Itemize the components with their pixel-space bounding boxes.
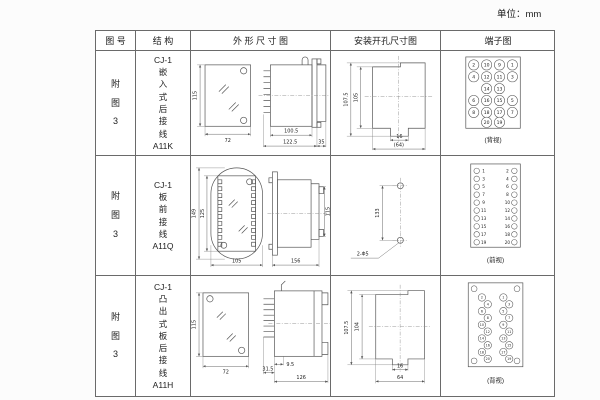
svg-text:17: 17	[497, 110, 503, 116]
dim-label: 115	[192, 91, 198, 100]
row1-terminal-diagram: 2109141211314136161558181772019 (背视)	[441, 51, 555, 155]
unit-label: 单位：mm	[497, 6, 541, 20]
row2-terminal-diagram: 1234567891011121314151617181920 (前视)	[441, 156, 555, 275]
header-structure-col: 结 构	[136, 31, 191, 51]
dim-label: 105	[232, 259, 241, 265]
side-view-drawing: 9.5 31.5 126	[262, 280, 329, 382]
svg-text:6: 6	[472, 98, 475, 104]
svg-text:7: 7	[511, 110, 514, 116]
svg-text:4: 4	[506, 176, 509, 181]
svg-text:18: 18	[505, 232, 511, 237]
svg-text:9: 9	[502, 322, 504, 326]
header-terminal-col: 端子图	[441, 31, 555, 51]
row3-outline-cell: 115 72 9.5 31.5 126	[191, 276, 331, 396]
dim-label: 104	[355, 322, 361, 331]
svg-text:10: 10	[480, 322, 484, 326]
row2-install-cell: 133 2-Φ5	[331, 156, 441, 276]
svg-text:4: 4	[487, 302, 489, 306]
dim-label: 107.5	[343, 92, 349, 106]
svg-text:9: 9	[498, 63, 501, 69]
row3-install-diagram: 107.5 104 16 64	[331, 277, 440, 396]
svg-text:5: 5	[502, 309, 504, 313]
svg-text:12: 12	[484, 74, 490, 80]
hole-spec-label: 2-Φ5	[357, 252, 369, 258]
dim-label: 105	[353, 93, 359, 102]
svg-text:20: 20	[484, 120, 490, 126]
svg-text:20: 20	[486, 357, 490, 361]
svg-text:14: 14	[480, 336, 484, 340]
dim-label: (64)	[394, 143, 404, 149]
row1-install-cell: 107.5 105 16 (64)	[331, 51, 441, 156]
svg-text:14: 14	[484, 86, 490, 92]
svg-text:10: 10	[484, 63, 490, 69]
view-label: (背视)	[484, 135, 501, 144]
install-hole-drawing: 133 2-Φ5	[351, 178, 408, 258]
row3-figure-label: 附 图 3	[96, 276, 136, 396]
dim-label: 156	[291, 259, 300, 265]
terminal-circles: 1234567891011121314151617181920	[474, 168, 517, 245]
svg-text:8: 8	[487, 316, 489, 320]
svg-text:3: 3	[508, 302, 510, 306]
side-view-drawing: 156 115	[267, 172, 330, 267]
row1-figure-label: 附 图 3	[96, 51, 136, 156]
svg-text:19: 19	[497, 120, 503, 126]
svg-text:6: 6	[506, 184, 509, 189]
svg-text:11: 11	[481, 208, 487, 213]
dim-label: 72	[225, 138, 231, 144]
row2-terminal-cell: 1234567891011121314151617181920 (前视)	[441, 156, 555, 276]
svg-text:3: 3	[482, 176, 485, 181]
svg-text:7: 7	[508, 316, 510, 320]
svg-text:4: 4	[472, 74, 475, 80]
svg-text:19: 19	[481, 240, 487, 245]
svg-text:1: 1	[511, 63, 514, 69]
page-root: { "unit_label": "单位：mm", "header": { "co…	[0, 0, 600, 400]
svg-text:18: 18	[484, 110, 490, 116]
svg-text:3: 3	[511, 74, 514, 80]
svg-text:8: 8	[472, 110, 475, 116]
side-view-drawing: 100.5 122.5 35	[259, 57, 329, 147]
svg-text:8: 8	[506, 192, 509, 197]
svg-text:18: 18	[480, 350, 484, 354]
svg-text:1: 1	[502, 295, 504, 299]
dim-label: 122.5	[283, 140, 297, 146]
svg-text:9: 9	[482, 200, 485, 205]
svg-text:20: 20	[505, 240, 511, 245]
svg-text:11: 11	[507, 329, 511, 333]
svg-text:14: 14	[505, 216, 511, 221]
svg-text:16: 16	[484, 98, 490, 104]
dim-label: 9.5	[286, 362, 294, 368]
svg-text:16: 16	[505, 224, 511, 229]
dim-label: 100.5	[284, 129, 298, 135]
dim-label: 125	[200, 209, 206, 218]
view-label: (背视)	[487, 375, 504, 384]
row3-outline-diagram: 115 72 9.5 31.5 126	[191, 277, 330, 396]
svg-text:19: 19	[507, 357, 511, 361]
view-label: (前视)	[487, 255, 504, 264]
front-view-drawing: 115 72	[191, 292, 248, 375]
dim-label: 126	[296, 375, 305, 381]
dim-label: 149	[191, 209, 197, 218]
row3-install-cell: 107.5 104 16 64	[331, 276, 441, 396]
svg-text:12: 12	[486, 329, 490, 333]
row2-outline-cell: 149 125 105 156 115	[191, 156, 331, 276]
svg-text:1: 1	[482, 168, 485, 173]
dim-label: 31.5	[262, 366, 273, 372]
dim-label: 35	[318, 140, 324, 146]
svg-text:15: 15	[497, 98, 503, 104]
svg-text:5: 5	[482, 184, 485, 189]
svg-text:15: 15	[507, 343, 511, 347]
svg-text:6: 6	[481, 309, 483, 313]
row3-terminal-cell: 2468101214161820135791113151719 (背视)	[441, 276, 555, 396]
header-install-col: 安装开孔尺寸图	[331, 31, 441, 51]
svg-text:12: 12	[505, 208, 511, 213]
svg-text:17: 17	[501, 350, 505, 354]
svg-text:11: 11	[497, 74, 503, 80]
svg-text:17: 17	[481, 232, 487, 237]
row1-outline-cell: 115 72 100.5 122.5	[191, 51, 331, 156]
install-hole-drawing: 107.5 104 16 64	[344, 284, 431, 383]
terminal-circles: 2109141211314136161558181772019	[469, 60, 518, 128]
svg-text:2: 2	[506, 168, 509, 173]
row2-install-diagram: 133 2-Φ5	[331, 156, 440, 275]
dimension-table: 图 号 结 构 外 形 尺 寸 图 安装开孔尺寸图 端子图 附 图 3 CJ-1…	[95, 30, 555, 397]
dim-label: 115	[191, 319, 197, 328]
svg-text:13: 13	[481, 216, 487, 221]
row3-structure-label: CJ-1 凸 出 式 板 后 接 线 A11H	[136, 276, 191, 396]
svg-text:10: 10	[505, 200, 511, 205]
svg-text:16: 16	[486, 343, 490, 347]
row2-structure-label: CJ-1 板 前 接 线 A11Q	[136, 156, 191, 276]
dim-label: 72	[223, 369, 229, 375]
svg-text:15: 15	[481, 224, 487, 229]
dim-label: 64	[397, 374, 403, 380]
front-view-drawing: 149 125 105	[191, 168, 262, 267]
svg-text:2: 2	[472, 63, 475, 69]
dim-label: 16	[396, 134, 402, 140]
svg-text:13: 13	[501, 336, 505, 340]
terminal-circles: 2468101214161820135791113151719	[471, 285, 520, 363]
row1-terminal-cell: 2109141211314136161558181772019 (背视)	[441, 51, 555, 156]
install-hole-drawing: 107.5 105 16 (64)	[343, 56, 433, 150]
dim-label: 107.5	[344, 320, 350, 334]
dim-label: 133	[375, 208, 381, 217]
header-outline-col: 外 形 尺 寸 图	[191, 31, 331, 51]
header-figure-col: 图 号	[96, 31, 136, 51]
dim-label: 115	[325, 207, 330, 216]
row1-outline-diagram: 115 72 100.5 122.5	[191, 51, 330, 155]
svg-text:5: 5	[511, 98, 514, 104]
front-view-drawing: 115 72	[192, 65, 250, 144]
svg-text:13: 13	[497, 86, 503, 92]
svg-text:7: 7	[482, 192, 485, 197]
row1-install-diagram: 107.5 105 16 (64)	[331, 51, 440, 155]
dim-label: 16	[397, 363, 403, 369]
svg-text:2: 2	[481, 295, 483, 299]
row2-figure-label: 附 图 3	[96, 156, 136, 276]
row3-terminal-diagram: 2468101214161820135791113151719 (背视)	[441, 277, 555, 396]
row1-structure-label: CJ-1 嵌 入 式 后 接 线 A11K	[136, 51, 191, 156]
row2-outline-diagram: 149 125 105 156 115	[191, 156, 330, 275]
